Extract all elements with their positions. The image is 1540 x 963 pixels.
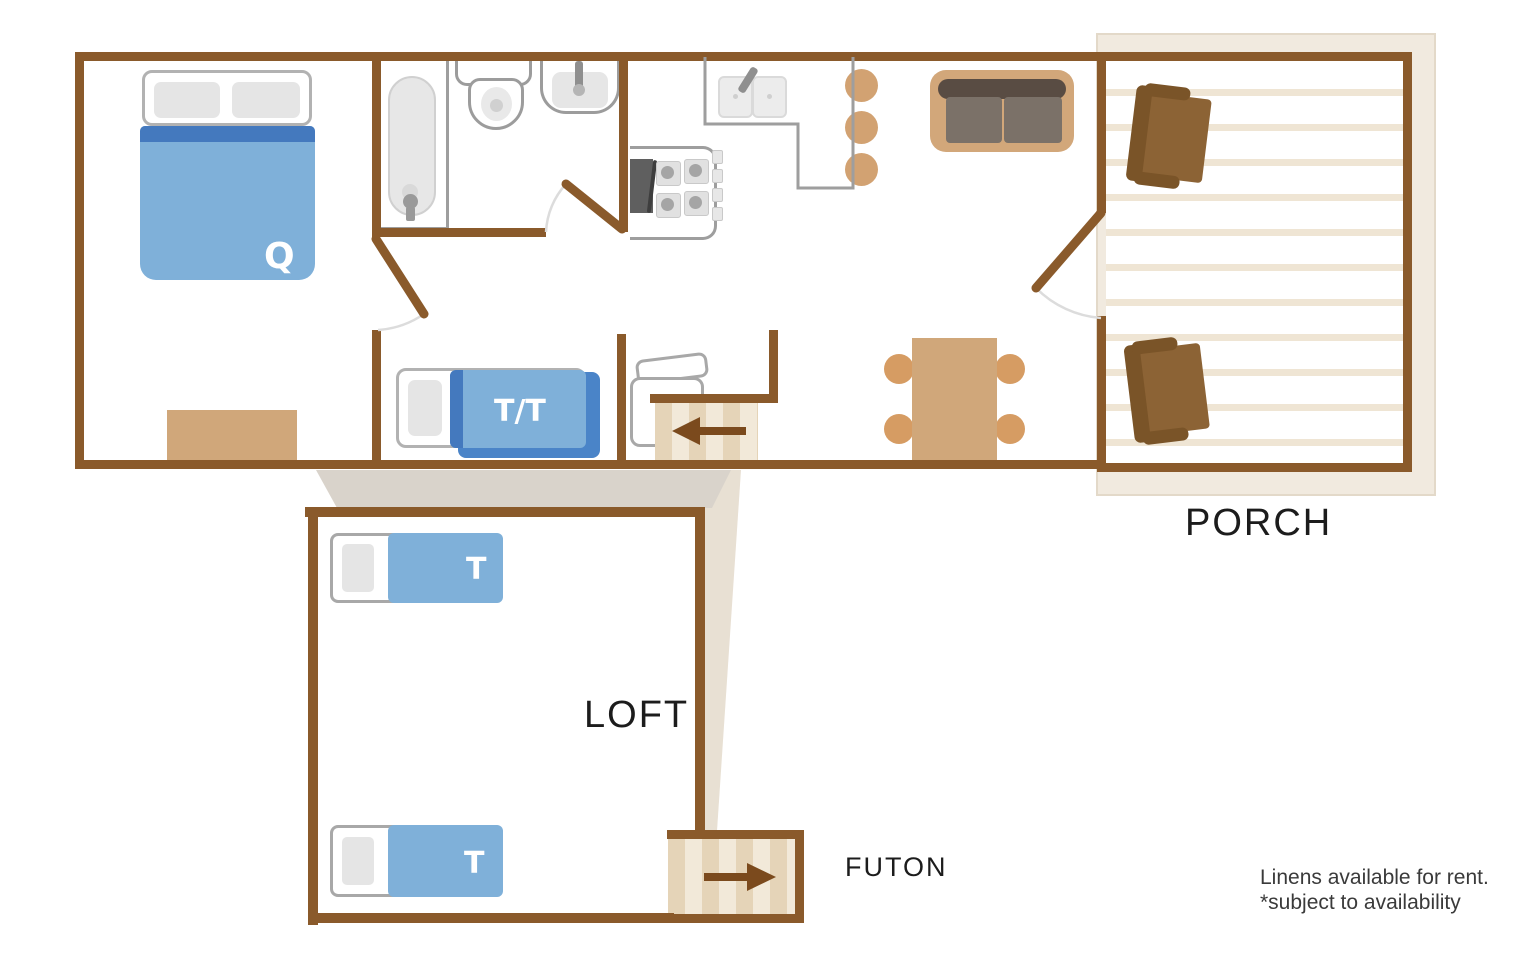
bed-pillow: [408, 380, 442, 436]
wall-bottom: [75, 460, 1106, 469]
wall-porch-right: [1403, 52, 1412, 472]
bathroom-faucet-dot: [573, 84, 585, 96]
stairs-lower-wall-top: [667, 830, 804, 839]
bed-pillow: [342, 837, 374, 885]
stairs-lower-wall-right: [795, 830, 804, 923]
linens-note: Linens available for rent. *subject to a…: [1260, 866, 1489, 916]
dresser: [167, 410, 297, 463]
sofa: [930, 70, 1074, 152]
floor-plan: Q: [0, 0, 1540, 963]
dining-chair: [995, 354, 1025, 384]
linens-note-line2: *subject to availability: [1260, 891, 1489, 916]
loft-shadow: [316, 470, 731, 508]
stove-knob: [712, 207, 723, 221]
porch-label: PORCH: [1185, 502, 1332, 545]
stove-burner: [656, 193, 681, 218]
stairs-upper: [655, 403, 758, 460]
dining-chair: [995, 414, 1025, 444]
sofa-cushion: [1004, 97, 1062, 143]
wall-bedroom-upper: [372, 61, 381, 237]
sofa-back: [938, 79, 1066, 99]
wall-bunkroom-right: [617, 334, 626, 460]
wall-top: [75, 52, 1412, 61]
wall-bedroom-lower: [372, 330, 381, 460]
loft-bed-label: T: [464, 846, 484, 881]
kitchen-sink-drain: [767, 94, 772, 99]
wall-porch-bottom: [1097, 463, 1412, 472]
stair-connector-ribbon: [701, 470, 741, 831]
stove-knob: [712, 150, 723, 164]
futon-label: FUTON: [845, 852, 948, 883]
dining-chair: [884, 414, 914, 444]
bed-pillow: [232, 82, 300, 118]
wall-stairs-top: [650, 394, 778, 403]
stairs-lower-wall-bottom: [667, 914, 804, 923]
bed-blanket: [388, 825, 503, 897]
loft-wall-bottom: [308, 913, 674, 923]
bathtub-faucet-stem: [406, 207, 415, 221]
wall-stairs-right: [769, 330, 778, 403]
bar-stool: [845, 111, 878, 144]
queen-bed-label: Q: [264, 236, 295, 277]
wall-left: [75, 52, 84, 469]
stove-knob: [712, 188, 723, 202]
porch-armchair: [1125, 82, 1215, 193]
bed-pillow: [342, 544, 374, 592]
loft-label: LOFT: [584, 694, 689, 737]
toilet-bowl-dot: [490, 99, 503, 112]
wall-living-porch-upper: [1097, 61, 1106, 213]
bed-blanket-band: [450, 370, 463, 448]
stairs-lower: [668, 839, 795, 914]
porch-armchair: [1121, 333, 1215, 446]
stove-burner: [684, 191, 709, 216]
wall-bathroom-bottom: [376, 228, 546, 237]
bed-pillow: [154, 82, 220, 118]
loft-wall-right: [695, 507, 705, 837]
stove-burner: [684, 159, 709, 184]
stove-burner: [656, 161, 681, 186]
bed-blanket-band: [140, 126, 315, 142]
bar-stool: [845, 153, 878, 186]
dining-chair: [884, 354, 914, 384]
bar-stool: [845, 69, 878, 102]
loft-bed-label: T: [466, 552, 486, 587]
wall-bathroom-right: [619, 61, 628, 232]
kitchen-sink-drain: [733, 94, 738, 99]
wall-living-porch-lower: [1097, 316, 1106, 463]
twin-bunk-label: T/T: [494, 394, 546, 429]
sofa-cushion: [946, 97, 1002, 143]
loft-wall-top: [305, 507, 705, 517]
linens-note-line1: Linens available for rent.: [1260, 866, 1489, 891]
dining-table: [912, 338, 997, 463]
stove-knob: [712, 169, 723, 183]
loft-wall-left: [308, 507, 318, 925]
